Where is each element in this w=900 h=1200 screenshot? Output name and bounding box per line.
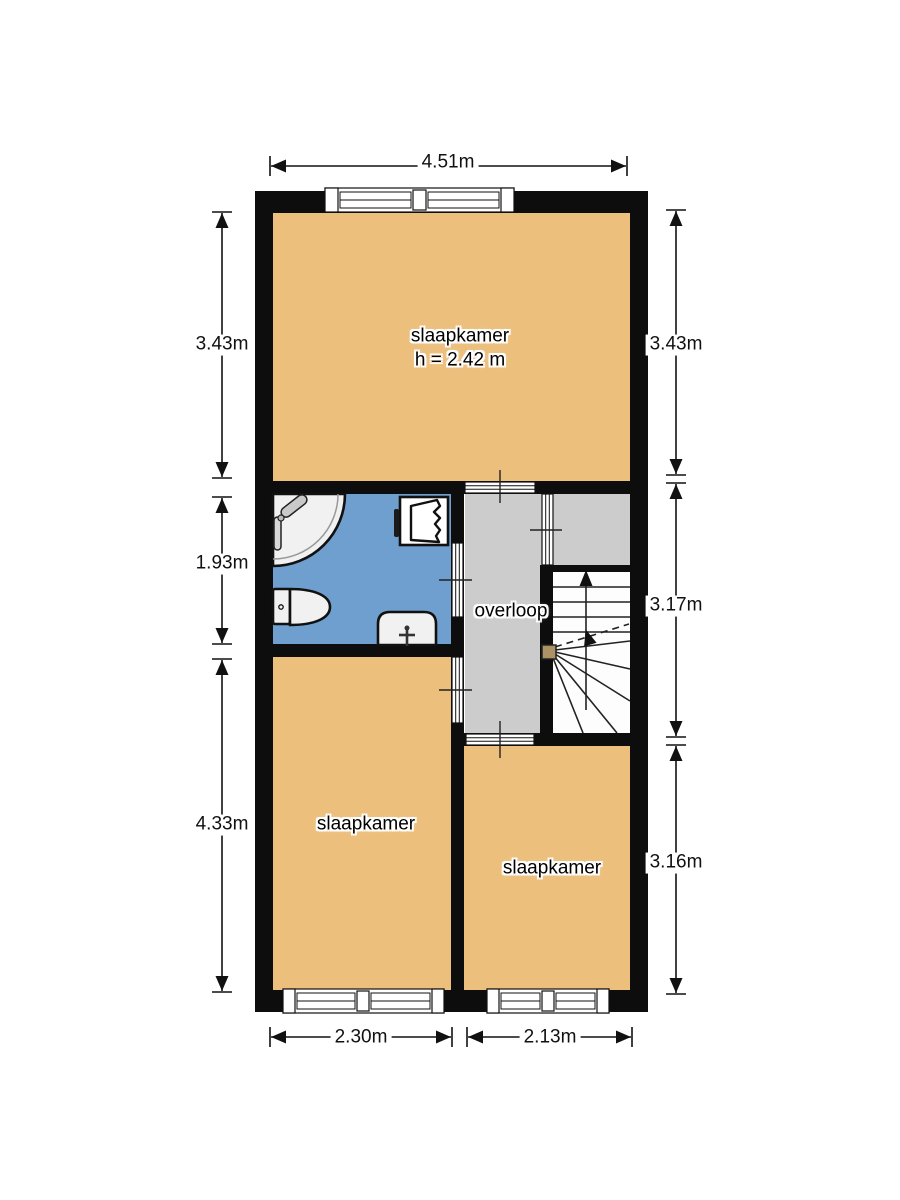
dimension-label-bottom-left: 2.30m [331, 1028, 392, 1049]
dimension-label-right-bottom: 3.16m [646, 853, 707, 874]
room-label-bedroom-top: slaapkamer [411, 327, 509, 348]
hand-basin-icon [378, 612, 436, 646]
floor-plan: slaapkamer h = 2.42 m overloop slaapkame… [0, 0, 900, 1200]
stairwell-floor [553, 572, 630, 733]
wall-top-interior [273, 481, 630, 494]
dimension-label-left-top: 3.43m [192, 335, 253, 356]
room-height-note: h = 2.42 m [415, 351, 505, 372]
dimension-label-left-middle: 1.93m [192, 554, 253, 575]
dimension-label-right-middle: 3.17m [646, 596, 707, 617]
window-bottom-right [487, 989, 609, 1013]
room-label-bedroom-right: slaapkamer [503, 859, 601, 880]
dimension-label-bottom-right: 2.13m [520, 1028, 581, 1049]
window-top [325, 188, 514, 212]
window-bottom-left [283, 989, 444, 1013]
washbasin-icon [394, 497, 448, 545]
dimension-label-top: 4.51m [418, 153, 479, 174]
room-label-landing: overloop [475, 602, 548, 623]
room-label-bedroom-left: slaapkamer [317, 815, 415, 836]
floor-plan-drawing [0, 0, 900, 1200]
wall-stair-top [553, 565, 630, 572]
stair-newel-post [542, 645, 556, 659]
dimension-label-right-top: 3.43m [646, 335, 707, 356]
toilet-icon [273, 589, 330, 625]
landing-floor-lower [465, 565, 540, 733]
dimension-label-left-bottom: 4.33m [192, 815, 253, 836]
